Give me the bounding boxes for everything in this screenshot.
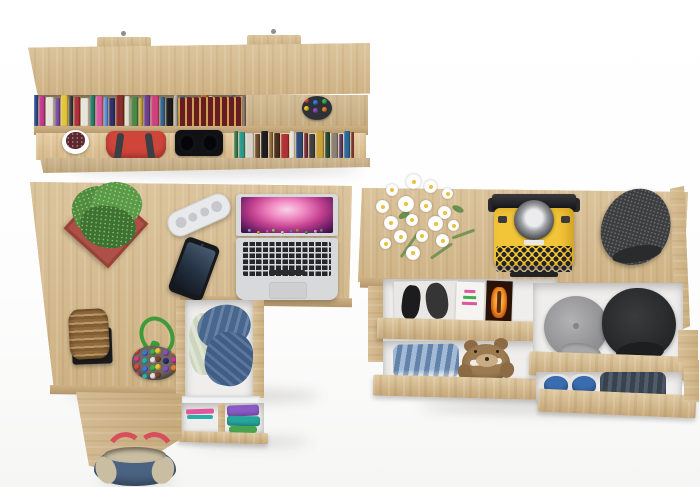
caps-drawer <box>533 283 683 363</box>
color-dot <box>163 358 169 364</box>
flyer-mark <box>464 290 475 293</box>
daisy-flower <box>442 188 453 199</box>
drawer-side-stub <box>678 330 698 364</box>
bead-charm-pouch <box>132 346 178 380</box>
pedestal-lower-compartment <box>182 403 264 433</box>
typewriter-spacebar <box>510 272 558 277</box>
gray-cap-button <box>573 323 579 329</box>
color-dot <box>155 364 161 370</box>
book-spine <box>139 98 143 126</box>
daisy-center <box>404 202 408 206</box>
daisy-flower <box>406 214 418 226</box>
color-dot <box>313 108 318 113</box>
daisy-flower <box>376 200 389 213</box>
color-dot <box>272 229 275 232</box>
power-socket <box>187 211 199 223</box>
daisy-flower <box>380 238 391 249</box>
daisy-center <box>434 222 438 226</box>
daisy-flower <box>406 174 421 189</box>
pen-cup <box>302 96 332 120</box>
book-spine <box>131 97 138 126</box>
color-dot <box>134 364 140 370</box>
book-spine <box>96 96 103 126</box>
book-spine <box>316 131 324 158</box>
magazine-bottle <box>497 291 502 313</box>
color-dot <box>322 99 327 104</box>
flyer-magazine <box>455 282 484 323</box>
book-spine <box>116 95 124 126</box>
daisy-center <box>412 180 416 184</box>
book-spine <box>109 98 115 126</box>
book-spine <box>144 95 150 126</box>
flyer-mark <box>463 296 476 299</box>
book-spine <box>55 98 60 126</box>
book-spine <box>269 132 273 158</box>
teddy-eye <box>496 350 499 353</box>
daisy-center <box>424 204 428 208</box>
tote-opening <box>104 447 166 463</box>
pedestal-right-wall <box>253 300 264 398</box>
daisy-flower <box>428 216 443 231</box>
book-spine <box>61 95 68 126</box>
book-spine <box>325 132 330 158</box>
book-spine <box>81 98 89 126</box>
laptop-spacebar <box>269 270 305 275</box>
color-dot <box>163 350 169 356</box>
color-dot <box>134 372 140 378</box>
compartment-divider <box>218 403 225 433</box>
folded-cloth-strip <box>187 415 213 419</box>
color-dot <box>155 348 161 354</box>
daisy-flower <box>436 234 449 247</box>
book-spine <box>104 97 108 126</box>
color-dot <box>305 231 308 234</box>
typewriter-keys <box>496 246 572 272</box>
book-spine <box>290 131 295 158</box>
book-spine <box>125 96 130 126</box>
shelf-books-bottom-row <box>234 131 354 160</box>
folded-shirt <box>227 404 259 416</box>
daisy-center <box>452 224 456 228</box>
drawer-side-stub <box>684 360 699 402</box>
book-spine <box>281 134 289 158</box>
magazine-figure <box>400 284 422 320</box>
flyer-mark <box>462 302 477 306</box>
magazine-drawer <box>383 279 557 324</box>
daisy-center <box>384 242 388 246</box>
book-spine <box>46 97 54 126</box>
daisy-bouquet <box>372 172 487 272</box>
daisy-flower <box>386 184 398 196</box>
book-spine <box>151 96 159 126</box>
color-dot <box>142 350 148 356</box>
folded-shirt <box>227 416 260 427</box>
book-spine <box>261 131 268 158</box>
fashion-magazine <box>394 280 459 323</box>
book-spine <box>234 131 238 158</box>
teddy-nose <box>485 357 489 361</box>
pedestal-rail <box>182 396 260 403</box>
power-socket <box>199 206 211 218</box>
headphone-cup <box>179 134 195 152</box>
daisy-flower <box>420 200 432 212</box>
color-dot <box>296 229 299 232</box>
daisy-flower <box>424 180 437 193</box>
shelf-plant <box>66 132 85 149</box>
color-dot <box>142 374 148 380</box>
book-spine <box>69 96 73 126</box>
book-spine <box>255 134 260 158</box>
laptop-trackpad <box>269 282 307 299</box>
color-dot <box>155 356 161 362</box>
daisy-flower <box>394 230 407 243</box>
daisy-center <box>399 235 403 239</box>
orange-magazine <box>485 281 512 325</box>
folded-cloth-strip <box>187 420 211 423</box>
color-dot <box>281 231 284 234</box>
daisy-center <box>441 239 445 243</box>
daisy-flower <box>448 220 459 231</box>
typewriter-lever <box>498 216 507 223</box>
color-dot <box>266 230 269 233</box>
color-dot <box>142 358 148 364</box>
color-dot <box>248 229 251 232</box>
color-dot <box>313 100 318 105</box>
book-spine <box>331 133 338 158</box>
color-dot <box>134 348 140 354</box>
book-spine <box>239 132 245 158</box>
daisy-center <box>443 211 447 215</box>
book-spine <box>74 97 80 126</box>
color-dot <box>322 107 327 112</box>
color-dot <box>304 106 309 111</box>
pedestal-left-wall <box>176 300 185 398</box>
color-dot <box>163 366 169 372</box>
book-spine <box>160 97 165 126</box>
daisy-center <box>390 188 394 192</box>
teddy-eye <box>474 350 477 353</box>
daisy-center <box>429 185 433 189</box>
color-dot <box>257 231 260 234</box>
daisy-flower <box>406 246 420 260</box>
laptop-dock <box>246 227 328 232</box>
book-spine <box>309 134 315 158</box>
shelf-top-board <box>28 42 370 98</box>
daisy-flower <box>384 216 398 230</box>
jeans-drawer-front <box>373 375 563 401</box>
color-dot <box>142 366 148 372</box>
book-spine <box>274 133 280 158</box>
flat-ornate-book <box>178 96 243 127</box>
book-spine <box>351 132 354 158</box>
typewriter-type-basket <box>514 200 554 240</box>
color-dot <box>290 230 293 233</box>
typewriter-lever <box>561 216 570 223</box>
daisy-center <box>446 192 450 196</box>
power-socket <box>209 199 224 214</box>
book-spine <box>90 95 95 126</box>
mount-screw <box>121 31 126 36</box>
color-dot <box>320 229 323 232</box>
daisy-center <box>420 234 424 238</box>
mount-screw <box>271 29 276 34</box>
book-spine <box>39 96 45 126</box>
color-dot <box>155 372 161 378</box>
typewriter-label <box>524 240 544 245</box>
typewriter <box>488 188 580 280</box>
daisy-center <box>410 218 414 222</box>
book-spine <box>339 134 343 158</box>
pedestal-open-drawer <box>185 300 253 398</box>
book-spine <box>34 95 38 126</box>
color-dot <box>304 98 309 103</box>
jeans-stack <box>393 343 460 378</box>
daisy-flower <box>416 230 428 242</box>
color-dot <box>134 356 140 362</box>
magazine-figure <box>424 282 450 320</box>
color-dot <box>314 230 317 233</box>
book-spine <box>166 98 173 126</box>
daisy-center <box>381 205 385 209</box>
laptop <box>236 194 338 300</box>
power-socket <box>174 215 189 230</box>
daisy-flower <box>398 196 414 212</box>
book-spine <box>296 132 303 158</box>
pedestal-drawer-front <box>178 431 268 444</box>
book-spine <box>344 131 350 158</box>
book-spine <box>304 133 308 158</box>
folded-cloth-strip <box>186 409 214 415</box>
furniture-set-render <box>0 0 700 487</box>
daisy-center <box>389 221 393 225</box>
daisy-center <box>411 251 415 255</box>
book-spine <box>246 133 254 158</box>
woven-basket <box>68 308 111 360</box>
headphone-cup <box>202 134 218 152</box>
